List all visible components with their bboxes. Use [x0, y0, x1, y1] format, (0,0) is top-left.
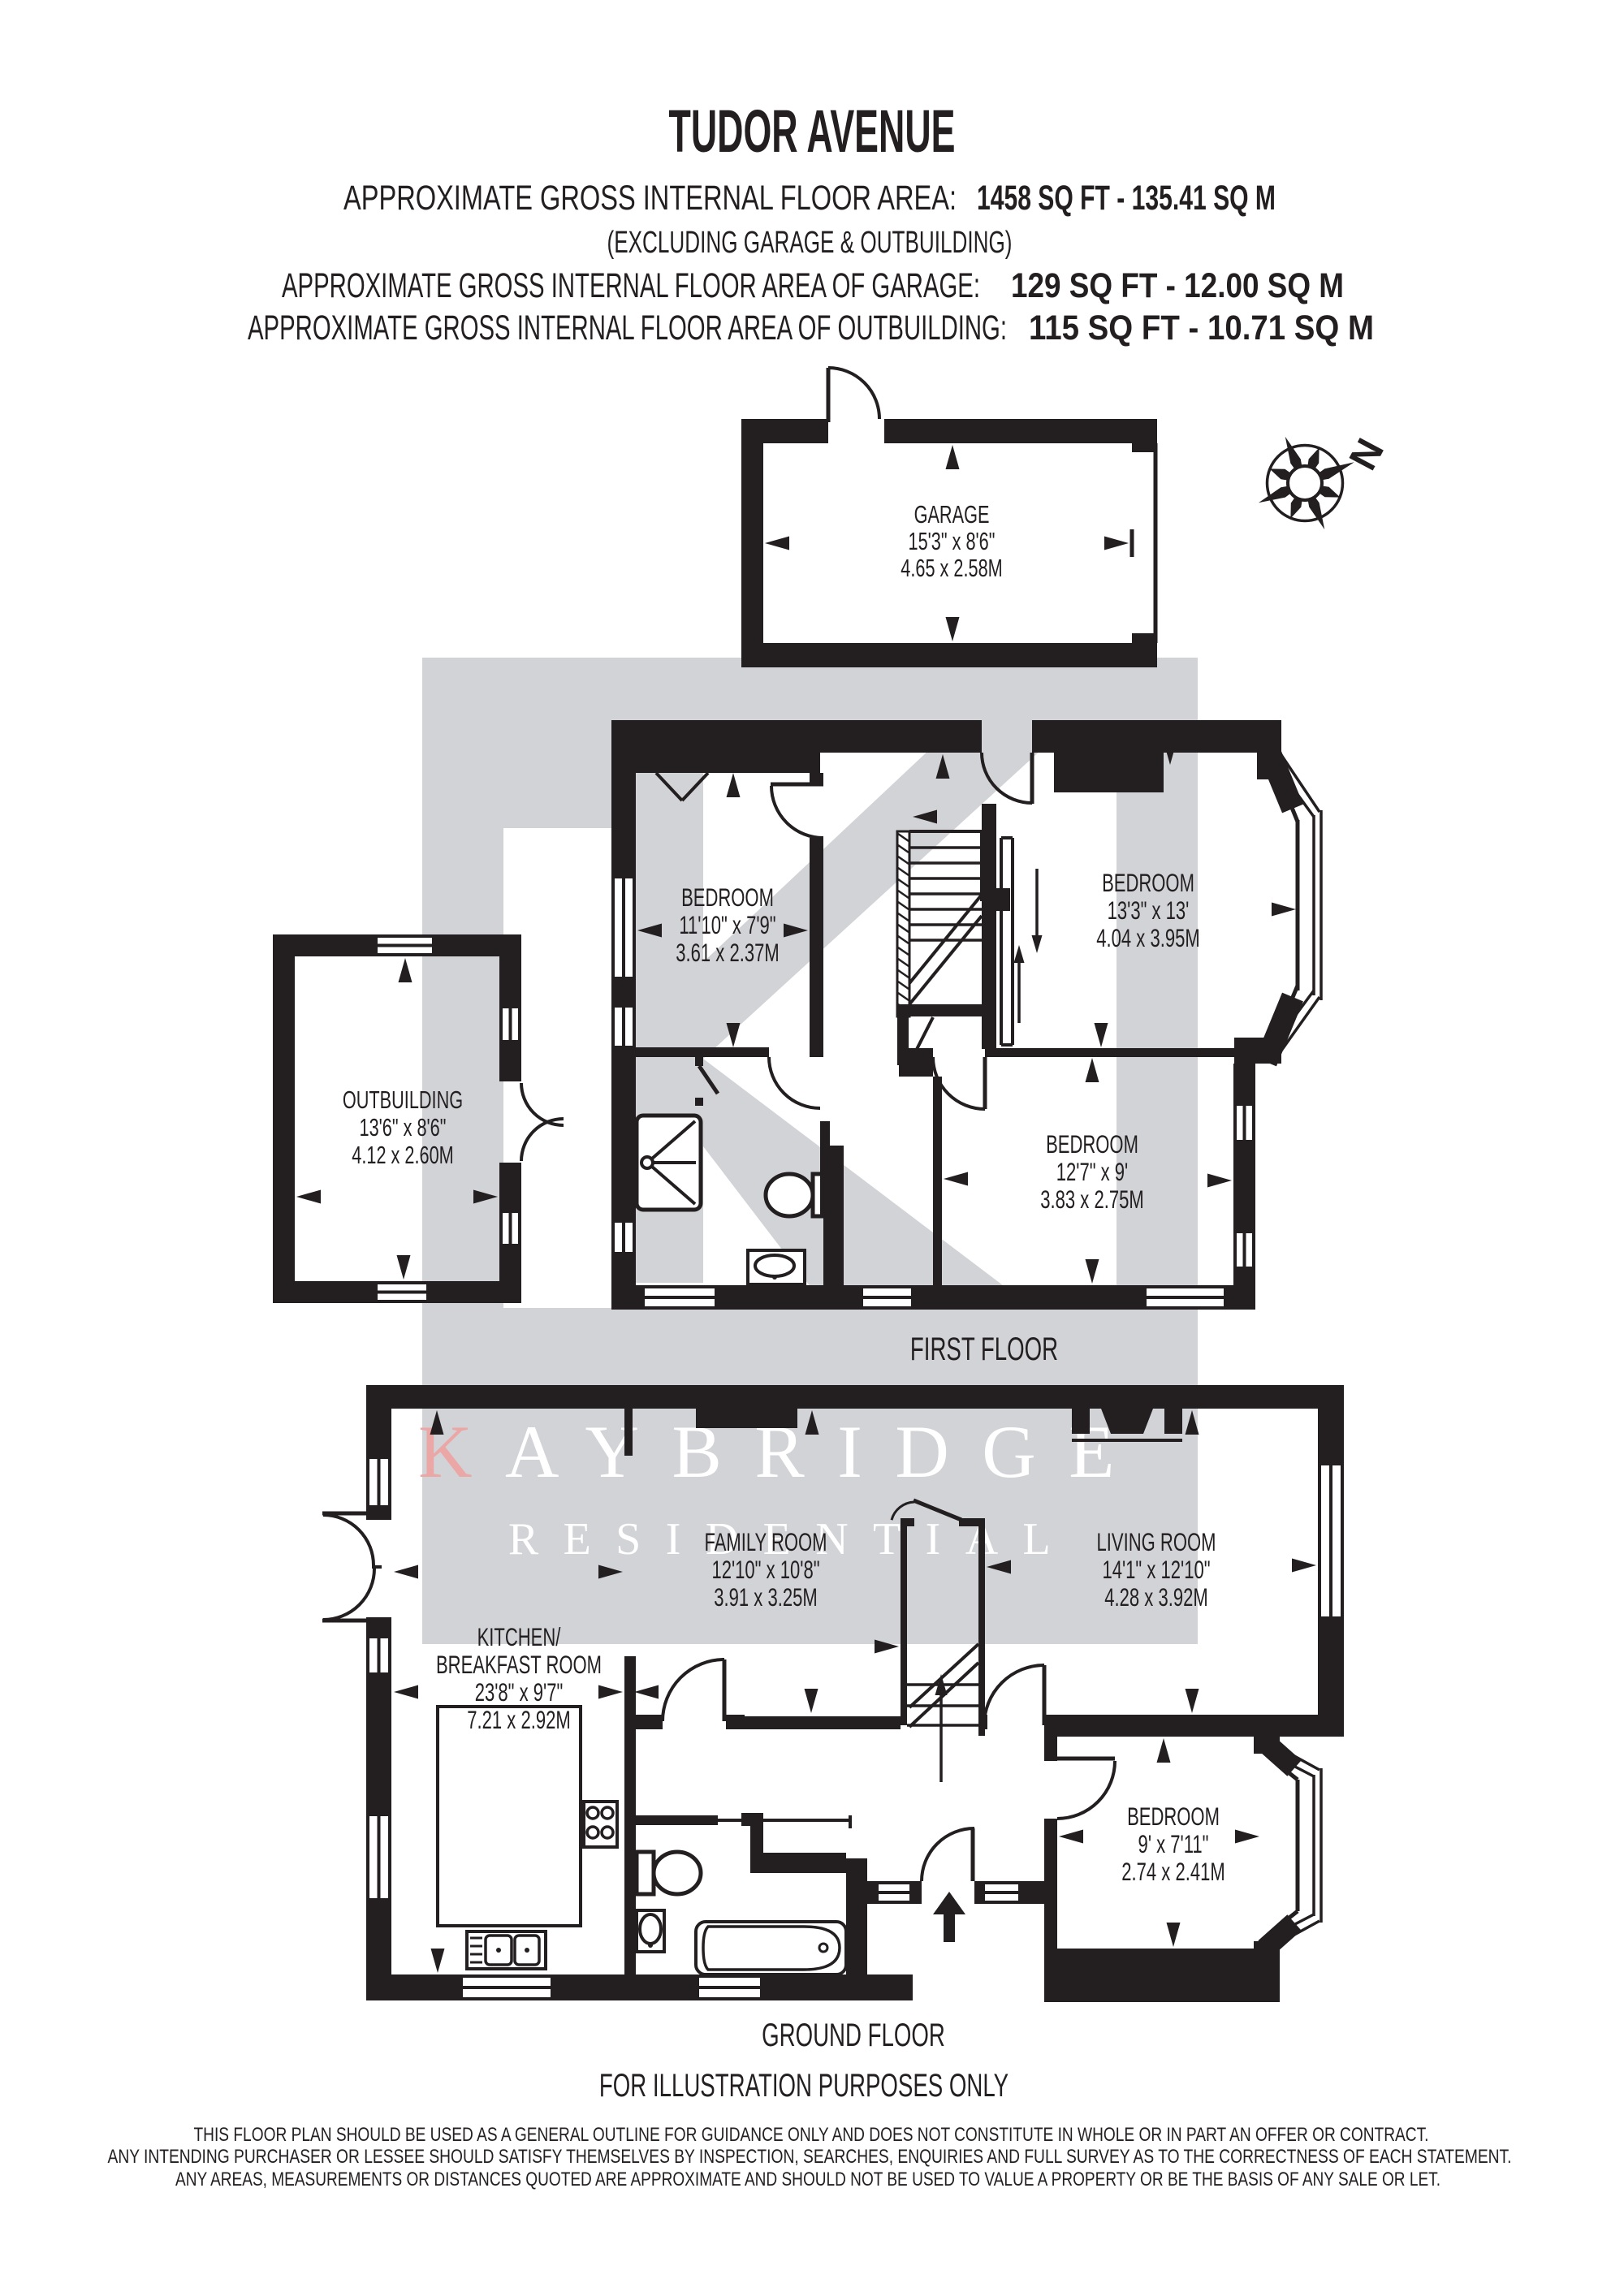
svg-text:13'3" x 13': 13'3" x 13' [1108, 896, 1190, 925]
svg-text:THIS FLOOR PLAN SHOULD BE USED: THIS FLOOR PLAN SHOULD BE USED AS A GENE… [194, 2124, 1429, 2146]
svg-text:APPROXIMATE GROSS INTERNAL FLO: APPROXIMATE GROSS INTERNAL FLOOR AREA OF… [282, 266, 980, 305]
svg-text:ANY INTENDING PURCHASER OR LES: ANY INTENDING PURCHASER OR LESSEE SHOULD… [108, 2146, 1512, 2168]
svg-text:12'7" x 9': 12'7" x 9' [1056, 1157, 1129, 1186]
svg-text:LIVING ROOM: LIVING ROOM [1097, 1527, 1216, 1556]
svg-text:OUTBUILDING: OUTBUILDING [343, 1085, 463, 1114]
svg-text:14'1" x 12'10": 14'1" x 12'10" [1102, 1555, 1210, 1584]
svg-text:9' x 7'11": 9' x 7'11" [1138, 1829, 1209, 1858]
svg-text:BEDROOM: BEDROOM [1102, 868, 1194, 897]
svg-text:KITCHEN/: KITCHEN/ [477, 1622, 561, 1651]
svg-text:4.12 x 2.60M: 4.12 x 2.60M [352, 1141, 453, 1169]
svg-text:12'10" x 10'8": 12'10" x 10'8" [711, 1555, 819, 1584]
svg-text:APPROXIMATE GROSS INTERNAL FLO: APPROXIMATE GROSS INTERNAL FLOOR AREA: [343, 179, 957, 218]
svg-text:4.28 x 3.92M: 4.28 x 3.92M [1104, 1582, 1207, 1612]
svg-text:4.04 x 3.95M: 4.04 x 3.95M [1096, 923, 1199, 952]
svg-text:FIRST FLOOR: FIRST FLOOR [910, 1331, 1058, 1367]
svg-text:FAMILY ROOM: FAMILY ROOM [704, 1527, 827, 1556]
svg-text:7.21 x 2.92M: 7.21 x 2.92M [467, 1705, 570, 1734]
svg-text:GROUND FLOOR: GROUND FLOOR [762, 2018, 945, 2053]
svg-text:4.65 x 2.58M: 4.65 x 2.58M [901, 554, 1002, 582]
svg-text:ANY AREAS, MEASUREMENTS OR DIS: ANY AREAS, MEASUREMENTS OR DISTANCES QUO… [175, 2169, 1440, 2190]
svg-text:3.91 x 3.25M: 3.91 x 3.25M [714, 1582, 817, 1612]
svg-text:23'8" x 9'7": 23'8" x 9'7" [475, 1677, 564, 1707]
svg-text:TUDOR AVENUE: TUDOR AVENUE [669, 97, 956, 165]
svg-text:BEDROOM: BEDROOM [1127, 1802, 1220, 1831]
svg-text:115 SQ FT - 10.71 SQ M: 115 SQ FT - 10.71 SQ M [1029, 309, 1374, 347]
svg-text:FOR ILLUSTRATION PURPOSES ONLY: FOR ILLUSTRATION PURPOSES ONLY [599, 2068, 1009, 2104]
svg-text:(EXCLUDING GARAGE & OUTBUILDIN: (EXCLUDING GARAGE & OUTBUILDING) [607, 226, 1013, 260]
svg-text:APPROXIMATE GROSS INTERNAL FLO: APPROXIMATE GROSS INTERNAL FLOOR AREA OF… [248, 309, 1007, 347]
svg-text:2.74 x 2.41M: 2.74 x 2.41M [1121, 1857, 1224, 1886]
svg-text:11'10" x 7'9": 11'10" x 7'9" [679, 910, 775, 939]
svg-text:3.61 x 2.37M: 3.61 x 2.37M [676, 938, 779, 967]
svg-text:BREAKFAST ROOM: BREAKFAST ROOM [436, 1650, 602, 1679]
svg-text:13'6" x 8'6": 13'6" x 8'6" [360, 1113, 447, 1142]
svg-text:129 SQ FT - 12.00 SQ M: 129 SQ FT - 12.00 SQ M [1011, 266, 1344, 305]
svg-text:BEDROOM: BEDROOM [681, 883, 774, 912]
svg-text:BEDROOM: BEDROOM [1046, 1129, 1138, 1159]
svg-text:3.83 x 2.75M: 3.83 x 2.75M [1040, 1185, 1143, 1214]
svg-text:GARAGE: GARAGE [914, 500, 990, 529]
svg-text:1458 SQ FT - 135.41 SQ M: 1458 SQ FT - 135.41 SQ M [977, 179, 1276, 218]
svg-text:15'3" x 8'6": 15'3" x 8'6" [909, 527, 996, 555]
